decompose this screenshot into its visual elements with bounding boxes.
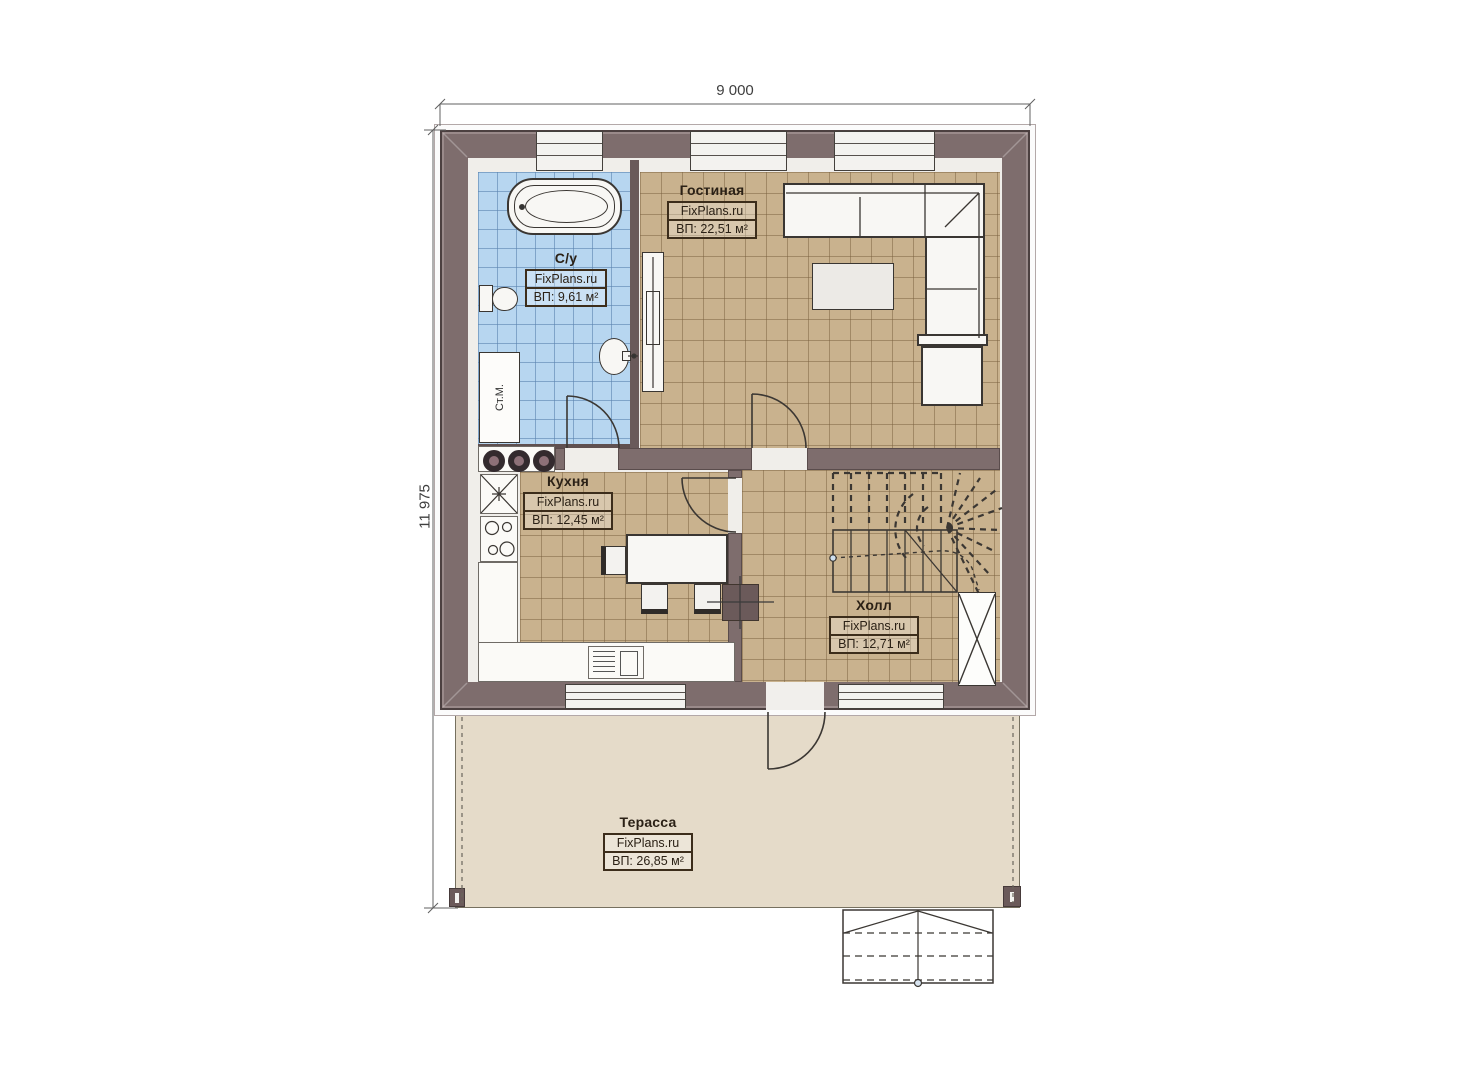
room-info-box: FixPlans.ru ВП: 12,71 м² [829,616,919,654]
wall-segment [630,160,639,448]
washing-machine: Ст.М. [479,352,520,443]
tv-stand [642,252,664,392]
bathtub [507,178,622,235]
room-title: Терасса [598,814,698,830]
room-title: Кухня [518,473,618,489]
watermark-text: FixPlans.ru [669,203,755,221]
room-info-box: FixPlans.ru ВП: 9,61 м² [525,269,608,307]
room-label-bathroom: С/у FixPlans.ru ВП: 9,61 м² [516,250,616,307]
window [834,131,935,171]
room-area: ВП: 22,51 м² [669,221,755,237]
wardrobe [958,592,996,686]
sink-basin [620,651,638,676]
kitchen-sink-unit [588,646,644,679]
watermark-text: FixPlans.ru [527,271,606,289]
room-area: ВП: 26,85 м² [605,853,691,869]
room-area: ВП: 9,61 м² [527,289,606,305]
room-title: Гостиная [662,182,762,198]
toilet-tank [479,285,493,312]
window [690,131,787,171]
kitchen-table [626,534,728,584]
watermark-text: FixPlans.ru [831,618,917,636]
room-info-box: FixPlans.ru ВП: 22,51 м² [667,201,757,239]
wall-segment [555,448,565,470]
room-area: ВП: 12,71 м² [831,636,917,652]
chair [601,546,626,575]
terrace-post [449,888,465,907]
dimension-left-label: 11 975 [417,467,434,547]
toilet-bowl [492,287,518,311]
room-title: С/у [516,250,616,266]
sofa-section [783,183,985,238]
terrace-deck [455,712,1020,908]
basin-tap [622,351,631,361]
exterior-steps [843,910,993,987]
dimension-top-label: 9 000 [440,82,1030,99]
hob-burner [533,450,555,472]
washing-machine-label: Ст.М. [494,384,506,411]
room-info-box: FixPlans.ru ВП: 12,45 м² [523,492,613,530]
hob-burner [508,450,530,472]
watermark-text: FixPlans.ru [605,835,691,853]
room-info-box: FixPlans.ru ВП: 26,85 м² [603,833,693,871]
window [536,131,603,171]
room-label-hall: Холл FixPlans.ru ВП: 12,71 м² [824,597,924,654]
window [565,684,686,709]
structural-column [722,584,759,621]
room-label-living: Гостиная FixPlans.ru ВП: 22,51 м² [662,182,762,239]
wall-segment [807,448,1000,470]
room-label-terrace: Терасса FixPlans.ru ВП: 26,85 м² [598,814,698,871]
watermark-text: FixPlans.ru [525,494,611,512]
room-title: Холл [824,597,924,613]
wall-segment [618,448,752,470]
room-label-kitchen: Кухня FixPlans.ru ВП: 12,45 м² [518,473,618,530]
window [838,684,944,709]
wall-segment [728,470,742,478]
entrance-door-opening [766,682,824,710]
floor-plan-canvas: 9 000 11 975 Ст.М. [0,0,1473,1080]
sofa-armrest [917,334,988,346]
room-area: ВП: 12,45 м² [525,512,611,528]
hob-burner [483,450,505,472]
sofa-ottoman [921,346,983,406]
chair [641,584,668,614]
stove [480,516,518,562]
chair [694,584,721,614]
sofa-section [925,236,985,336]
coffee-table [812,263,894,310]
terrace-post [1003,886,1021,907]
sink-drainer [593,651,615,676]
kitchen-sink-cabinet [480,474,518,514]
